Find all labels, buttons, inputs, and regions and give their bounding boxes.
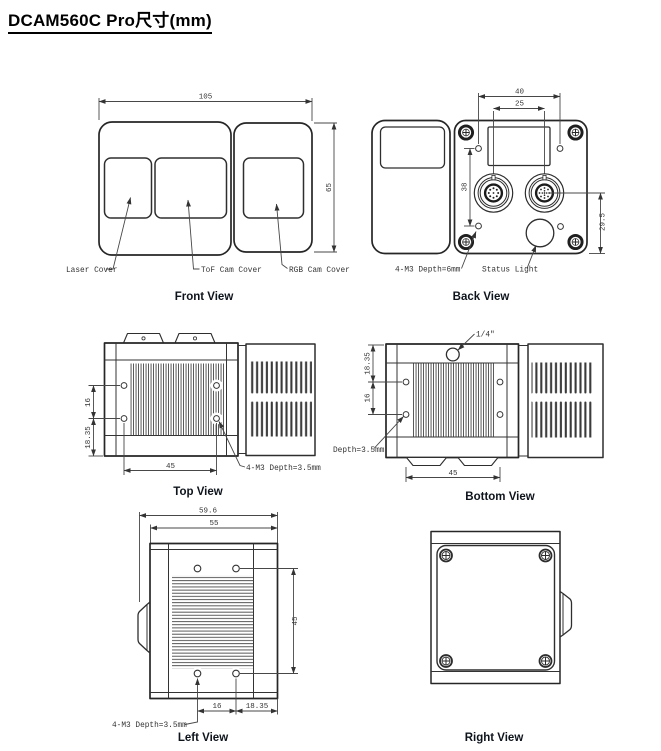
mount-tab bbox=[175, 334, 215, 344]
tof-cam-label: ToF Cam Cover bbox=[201, 267, 262, 275]
m3-hole bbox=[212, 414, 221, 423]
m3-hole bbox=[193, 564, 203, 574]
front-view-caption: Front View bbox=[175, 291, 234, 303]
back-side-panel bbox=[381, 127, 445, 168]
lens-bump bbox=[560, 592, 572, 638]
back-dim-40: 40 bbox=[515, 89, 525, 97]
top-dim-18-35: 18.35 bbox=[85, 426, 93, 449]
bottom-view: 18.35 16 45 1/4" Depth=3.5mm Bottom View bbox=[333, 332, 603, 504]
bottom-dim-18-35: 18.35 bbox=[365, 352, 373, 375]
back-view-caption: Back View bbox=[453, 291, 510, 303]
screw-icon bbox=[569, 126, 582, 139]
mount-tab bbox=[124, 334, 164, 344]
front-width-dim: 105 bbox=[199, 94, 213, 102]
heatsink-fins bbox=[413, 364, 495, 438]
front-rgb-body bbox=[234, 123, 312, 252]
m3-hole bbox=[555, 144, 564, 153]
back-dim-25: 25 bbox=[515, 101, 525, 109]
back-side-body bbox=[372, 121, 450, 254]
screw-icon bbox=[440, 550, 452, 562]
front-view: 105 65 Laser Cover ToF Cam Cover RGB Cam… bbox=[66, 94, 350, 304]
left-dim-59-6: 59.6 bbox=[199, 508, 218, 516]
connector-left-icon bbox=[474, 174, 512, 212]
back-dim-38: 38 bbox=[462, 182, 470, 191]
left-dim-16: 16 bbox=[212, 703, 222, 711]
left-m3-label: 4-M3 Depth=3.5mm bbox=[112, 722, 187, 730]
back-main-body bbox=[455, 121, 588, 254]
back-view: 40 25 38 29.5 4-M3 Depth=6mm Status Ligh… bbox=[372, 89, 608, 304]
top-view: 16 18.35 45 4-M3 Depth=3.5mm Top View bbox=[85, 334, 321, 499]
m3-hole bbox=[556, 222, 565, 231]
screw-icon bbox=[440, 655, 452, 667]
right-panel bbox=[437, 546, 555, 671]
top-m3-label: 4-M3 Depth=3.5mm bbox=[246, 465, 321, 473]
m3-hole bbox=[474, 144, 483, 153]
rgb-cam-window bbox=[244, 158, 304, 218]
m3-hole bbox=[193, 669, 203, 679]
m3-hole bbox=[495, 377, 504, 386]
lens-bump bbox=[138, 602, 150, 653]
screw-icon bbox=[459, 126, 472, 139]
top-dim-45: 45 bbox=[166, 463, 176, 471]
heatsink-fins bbox=[130, 364, 226, 436]
screw-icon bbox=[459, 235, 472, 248]
tripod-mount-hole bbox=[446, 348, 459, 361]
left-view-caption: Left View bbox=[178, 732, 228, 744]
top-view-caption: Top View bbox=[173, 486, 222, 498]
drawing-page: DCAM560C Pro尺寸(mm) bbox=[0, 0, 661, 751]
screw-icon bbox=[569, 235, 582, 248]
mount-tab bbox=[458, 458, 498, 466]
top-dim-16: 16 bbox=[85, 398, 93, 408]
back-dim-29-5: 29.5 bbox=[600, 213, 608, 232]
left-dim-45: 45 bbox=[292, 616, 300, 626]
bottom-view-caption: Bottom View bbox=[465, 491, 534, 503]
m3-hole bbox=[231, 564, 241, 574]
back-top-panel bbox=[488, 127, 550, 166]
rgb-cam-label: RGB Cam Cover bbox=[289, 267, 350, 275]
screw-icon bbox=[540, 550, 552, 562]
bottom-dim-45: 45 bbox=[448, 470, 458, 478]
left-dim-55: 55 bbox=[209, 520, 219, 528]
laser-cover-label: Laser Cover bbox=[66, 267, 117, 275]
vent-grille bbox=[251, 362, 313, 437]
status-light-label: Status Light bbox=[482, 267, 538, 275]
left-dim-18-35: 18.35 bbox=[246, 703, 269, 711]
m3-hole bbox=[119, 414, 128, 423]
front-main-body bbox=[99, 122, 231, 255]
front-height-dim: 65 bbox=[326, 183, 334, 193]
left-view: 59.6 55 45 16 18.35 bbox=[112, 508, 300, 745]
quarter-inch-label: 1/4" bbox=[476, 332, 495, 340]
status-light-circle bbox=[526, 219, 554, 247]
bottom-depth-label: Depth=3.5mm bbox=[333, 447, 385, 455]
m3-hole bbox=[474, 221, 483, 230]
mount-tab bbox=[407, 458, 447, 466]
m3-hole bbox=[231, 669, 241, 679]
tof-cam-window bbox=[155, 158, 227, 218]
m3-hole bbox=[119, 381, 128, 390]
right-view: Right View bbox=[431, 532, 572, 745]
bottom-dim-16: 16 bbox=[365, 393, 373, 403]
m3-hole bbox=[212, 381, 221, 390]
m3-hole bbox=[401, 377, 410, 386]
screw-icon bbox=[540, 655, 552, 667]
back-m3-label: 4-M3 Depth=6mm bbox=[395, 267, 461, 275]
right-view-caption: Right View bbox=[465, 732, 524, 744]
drawing-canvas: 105 65 Laser Cover ToF Cam Cover RGB Cam… bbox=[0, 0, 661, 751]
m3-hole bbox=[495, 410, 504, 419]
heatsink-fins bbox=[172, 575, 254, 669]
vent-grille bbox=[532, 363, 594, 438]
